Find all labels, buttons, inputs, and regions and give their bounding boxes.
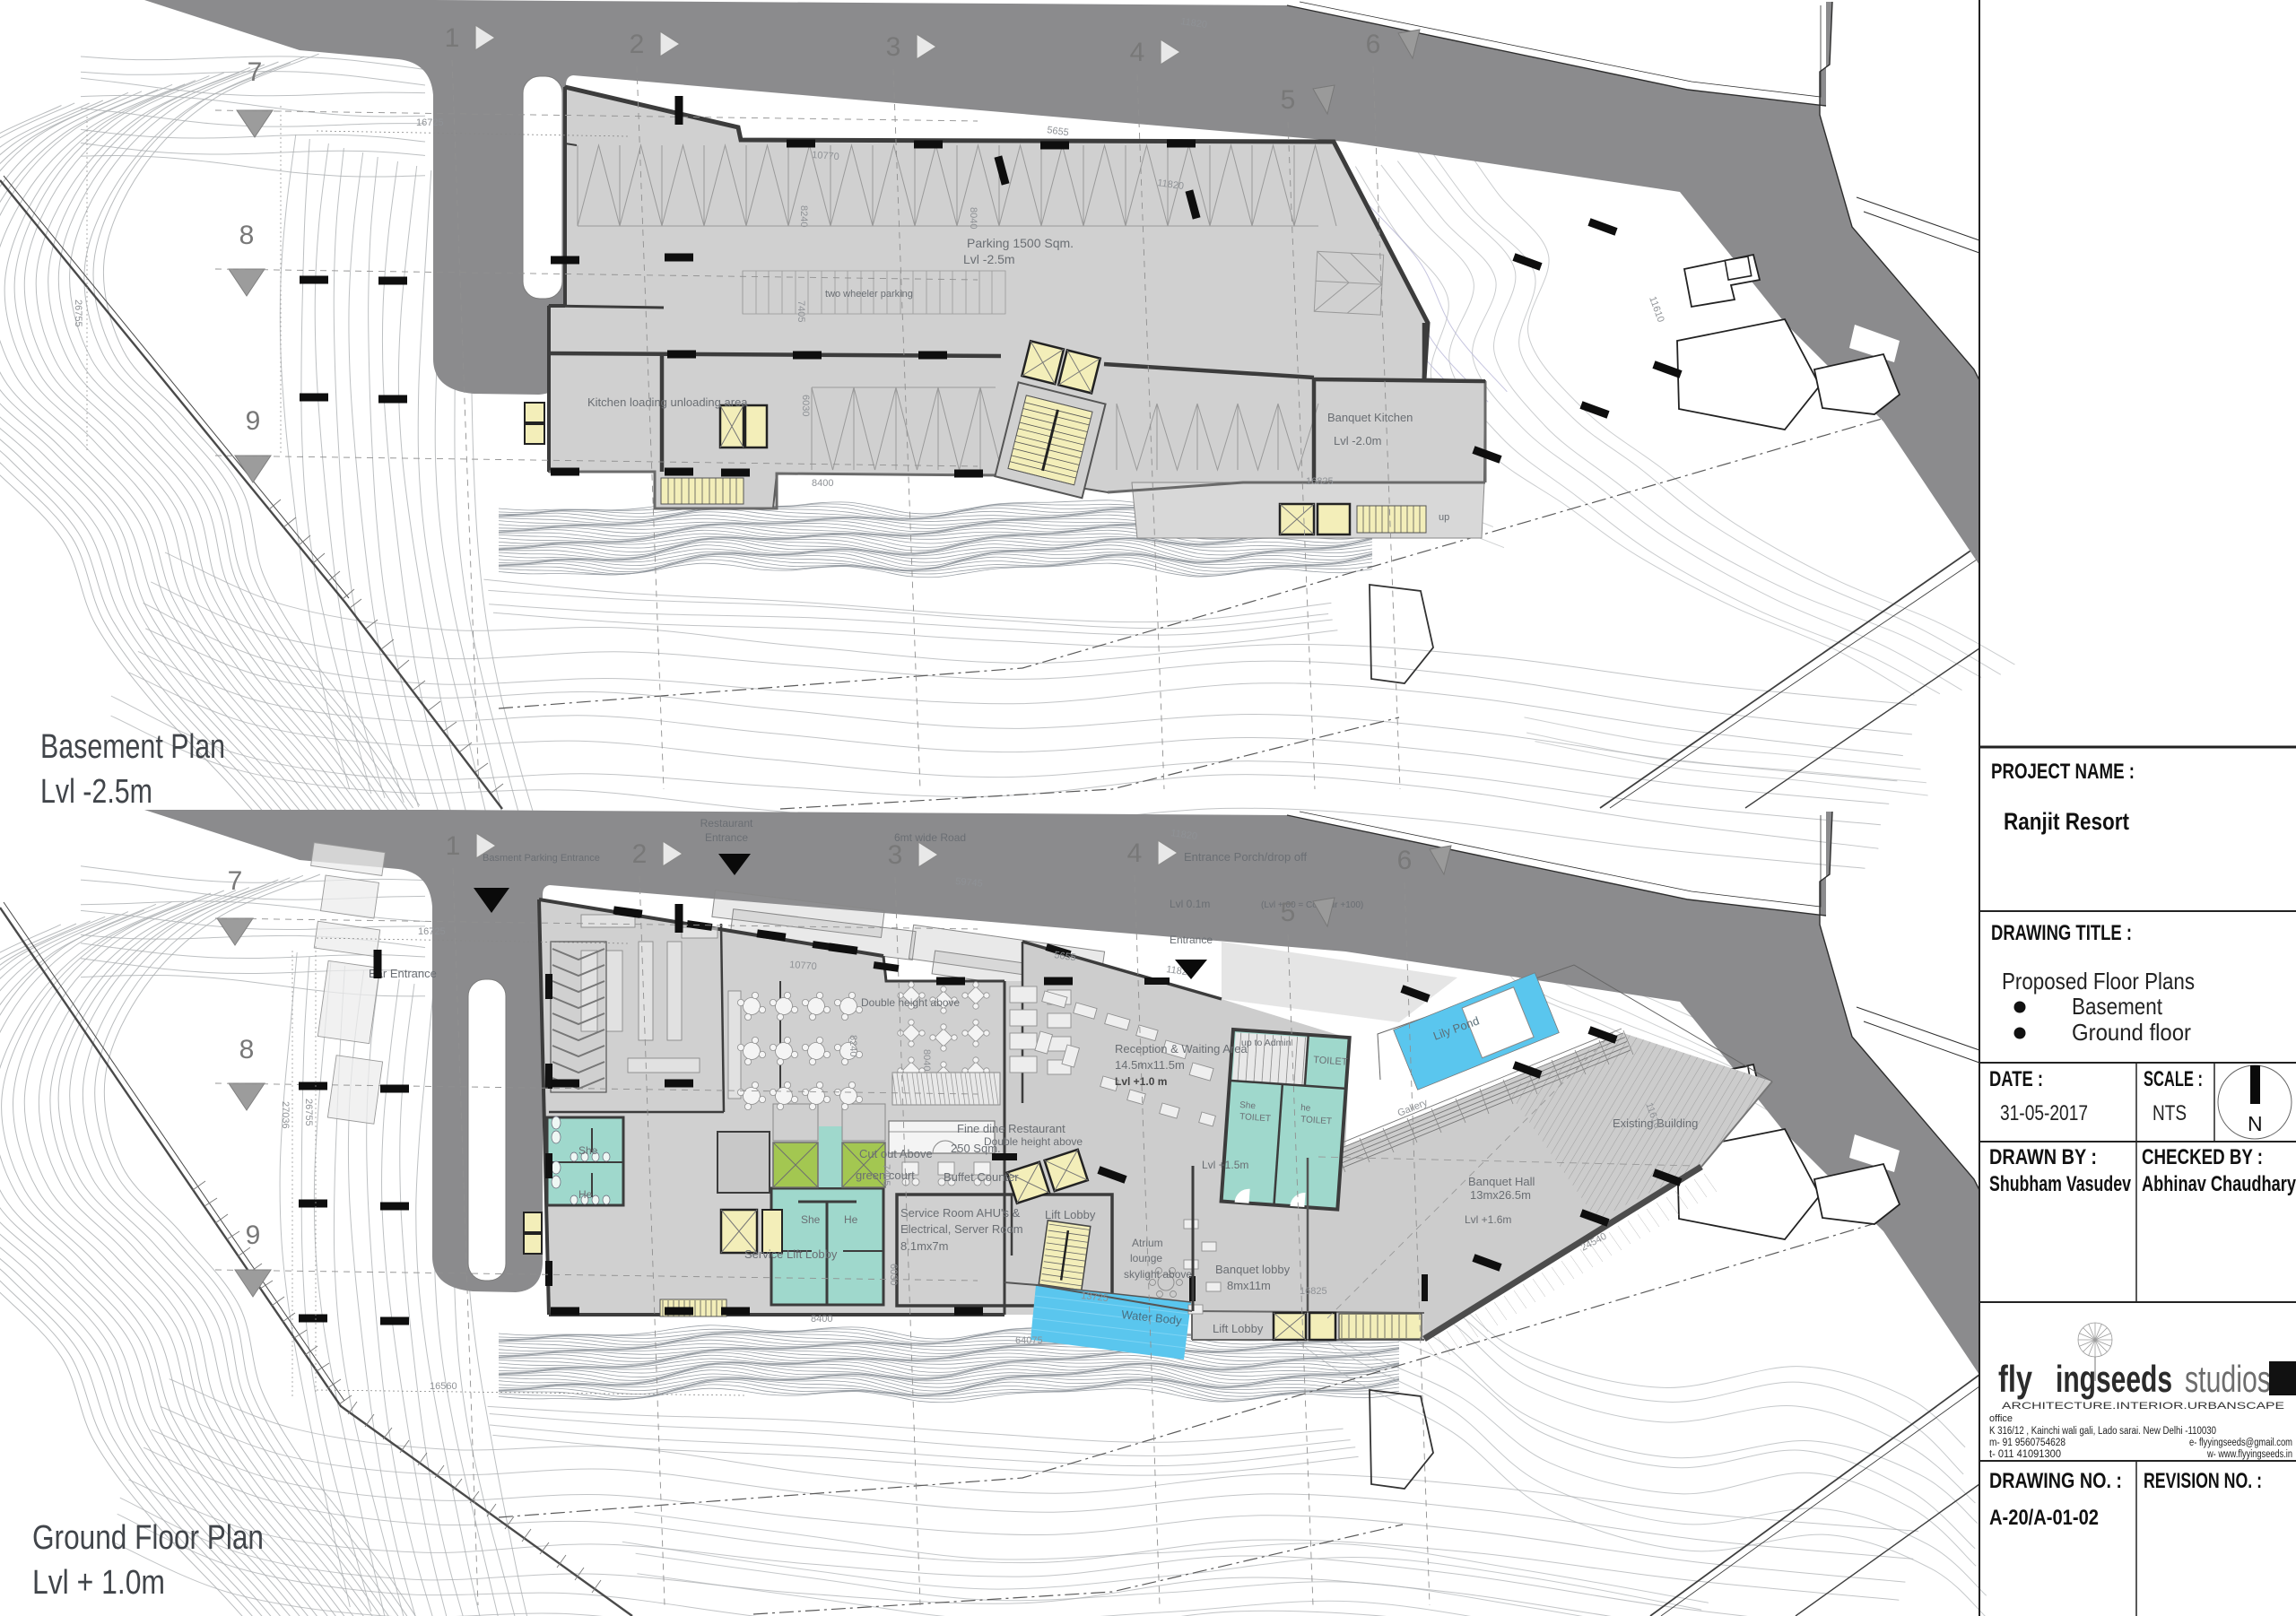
- svg-text:6mt wide Road: 6mt wide Road: [894, 831, 966, 844]
- svg-text:Banquet Hall: Banquet Hall: [1468, 1175, 1535, 1188]
- svg-text:NTS: NTS: [2152, 1101, 2187, 1125]
- svg-text:He: He: [578, 1188, 593, 1201]
- svg-text:Service Room AHU's &: Service Room AHU's &: [900, 1206, 1021, 1220]
- svg-text:DRAWN BY :: DRAWN BY :: [1989, 1145, 2097, 1169]
- svg-text:REVISION NO. :: REVISION NO. :: [2144, 1469, 2262, 1493]
- svg-text:8: 8: [239, 221, 255, 250]
- svg-text:She: She: [1239, 1100, 1257, 1111]
- svg-text:5: 5: [1281, 898, 1296, 927]
- svg-text:6: 6: [1397, 846, 1413, 875]
- svg-text:5: 5: [1281, 85, 1296, 115]
- svg-text:ingseeds: ingseeds: [2056, 1358, 2172, 1400]
- svg-text:Banquet Kitchen: Banquet Kitchen: [1327, 411, 1413, 424]
- svg-text:DATE :: DATE :: [1989, 1067, 2043, 1091]
- svg-text:8240: 8240: [848, 1035, 858, 1056]
- svg-text:Lvl +1.0 m: Lvl +1.0 m: [1115, 1075, 1167, 1088]
- svg-text:16825: 16825: [1306, 476, 1334, 487]
- svg-text:Basment Parking Entrance: Basment Parking Entrance: [483, 853, 600, 864]
- svg-text:up to Admin: up to Admin: [1241, 1038, 1291, 1048]
- svg-text:8240: 8240: [798, 205, 809, 227]
- svg-text:SCALE :: SCALE :: [2144, 1067, 2203, 1091]
- svg-text:26755: 26755: [303, 1099, 314, 1126]
- svg-text:K 316/12 , Kainchi wali gali,: K 316/12 , Kainchi wali gali, Lado sarai…: [1989, 1426, 2216, 1437]
- svg-text:31-05-2017: 31-05-2017: [2000, 1101, 2088, 1125]
- svg-text:16825: 16825: [1300, 1286, 1327, 1297]
- svg-text:8: 8: [239, 1035, 255, 1064]
- svg-text:two wheeler parking: two wheeler parking: [825, 289, 913, 300]
- svg-text:8040: 8040: [921, 1049, 932, 1071]
- svg-text:Parking 1500 Sqm.: Parking 1500 Sqm.: [967, 236, 1074, 250]
- svg-text:7: 7: [248, 57, 263, 87]
- svg-text:CHECKED BY :: CHECKED BY :: [2142, 1145, 2263, 1169]
- svg-text:fly: fly: [1998, 1358, 2032, 1400]
- svg-text:4: 4: [1130, 38, 1145, 67]
- svg-text:e- flyyingseeds@gmail.com: e- flyyingseeds@gmail.com: [2189, 1438, 2292, 1448]
- svg-text:6030: 6030: [888, 1264, 899, 1285]
- svg-text:64075: 64075: [1015, 1335, 1043, 1346]
- svg-text:w- www.flyyingseeds.in: w- www.flyyingseeds.in: [2206, 1449, 2292, 1460]
- svg-text:16560: 16560: [430, 1381, 457, 1392]
- svg-text:10770: 10770: [789, 960, 817, 972]
- svg-text:DRAWING NO. :: DRAWING NO. :: [1989, 1469, 2122, 1493]
- svg-text:Restaurant: Restaurant: [700, 817, 753, 830]
- svg-text:m- 91 9560754628: m- 91 9560754628: [1989, 1438, 2066, 1448]
- svg-text:27036: 27036: [280, 1101, 291, 1129]
- svg-text:6030: 6030: [800, 395, 811, 416]
- svg-text:1: 1: [445, 23, 460, 53]
- svg-text:skylight above: skylight above: [1124, 1268, 1192, 1281]
- svg-text:Basement: Basement: [2072, 993, 2163, 1020]
- svg-text:9: 9: [246, 406, 261, 436]
- svg-text:Entrance Porch/drop off: Entrance Porch/drop off: [1184, 850, 1307, 864]
- svg-text:Lift Lobby: Lift Lobby: [1213, 1322, 1264, 1335]
- svg-text:He: He: [844, 1213, 858, 1226]
- svg-text:studios: studios: [2185, 1358, 2271, 1400]
- svg-text:Entrance: Entrance: [1170, 934, 1213, 946]
- svg-text:7405: 7405: [796, 300, 806, 322]
- svg-text:10770: 10770: [812, 150, 839, 162]
- svg-text:Lvl -2.0m: Lvl -2.0m: [1334, 434, 1381, 447]
- svg-text:t- 011 41091300: t- 011 41091300: [1989, 1449, 2061, 1460]
- svg-text:Ground floor: Ground floor: [2072, 1019, 2191, 1046]
- svg-text:14.5mx11.5m: 14.5mx11.5m: [1115, 1058, 1185, 1072]
- svg-text:(Lvl + 00 = Contour +100): (Lvl + 00 = Contour +100): [1261, 900, 1363, 910]
- svg-text:7: 7: [228, 866, 243, 896]
- svg-text:Proposed Floor Plans: Proposed Floor Plans: [2002, 968, 2195, 995]
- svg-text:A-20/A-01-02: A-20/A-01-02: [1989, 1506, 2099, 1530]
- svg-text:7405: 7405: [881, 1164, 891, 1186]
- svg-text:Banquet lobby: Banquet lobby: [1215, 1263, 1291, 1276]
- svg-text:She: She: [801, 1213, 821, 1226]
- svg-text:he: he: [1300, 1103, 1311, 1114]
- svg-text:Abhinav Chaudhary: Abhinav Chaudhary: [2142, 1172, 2296, 1196]
- svg-text:2: 2: [632, 839, 648, 869]
- svg-text:3: 3: [888, 840, 903, 870]
- svg-text:She: She: [578, 1144, 598, 1157]
- svg-text:PROJECT NAME :: PROJECT NAME :: [1991, 760, 2135, 784]
- svg-text:16725: 16725: [418, 926, 446, 937]
- svg-text:DRAWING TITLE :: DRAWING TITLE :: [1991, 921, 2132, 945]
- svg-text:lounge: lounge: [1130, 1252, 1162, 1264]
- svg-text:Buffet Counter: Buffet Counter: [944, 1170, 1019, 1184]
- svg-text:Lvl + 1.0m: Lvl + 1.0m: [32, 1564, 165, 1602]
- svg-text:Ground Floor Plan: Ground Floor Plan: [32, 1519, 264, 1557]
- svg-text:4: 4: [1127, 838, 1143, 868]
- svg-text:N: N: [2248, 1112, 2263, 1135]
- svg-text:ARCHITECTURE.INTERIOR.URBANSCA: ARCHITECTURE.INTERIOR.URBANSCAPE: [2002, 1401, 2284, 1412]
- svg-text:Basement Plan: Basement Plan: [40, 728, 225, 766]
- svg-text:13mx26.5m: 13mx26.5m: [1470, 1188, 1531, 1202]
- svg-text:250 Sqm.: 250 Sqm.: [951, 1142, 1001, 1155]
- svg-text:Lvl -2.5m: Lvl -2.5m: [963, 252, 1015, 266]
- svg-text:8mx11m: 8mx11m: [1227, 1279, 1271, 1292]
- svg-text:Lift Lobby: Lift Lobby: [1045, 1208, 1096, 1221]
- svg-text:Electrical, Server Room: Electrical, Server Room: [900, 1222, 1023, 1236]
- svg-text:Entrance: Entrance: [705, 831, 748, 844]
- svg-text:Service Lift Lobby: Service Lift Lobby: [744, 1247, 838, 1261]
- svg-text:2: 2: [630, 30, 645, 59]
- svg-text:Lvl +1.6m: Lvl +1.6m: [1465, 1213, 1511, 1226]
- svg-text:16725: 16725: [416, 117, 444, 128]
- svg-text:26755: 26755: [73, 300, 83, 327]
- svg-text:3: 3: [886, 32, 901, 62]
- svg-text:office: office: [1989, 1413, 2013, 1424]
- svg-text:8400: 8400: [812, 478, 833, 489]
- svg-text:1: 1: [446, 831, 461, 861]
- svg-text:Lvl +1.5m: Lvl +1.5m: [1202, 1159, 1248, 1171]
- svg-text:up: up: [1439, 512, 1449, 523]
- svg-text:Lvl 0.1m: Lvl 0.1m: [1170, 898, 1210, 910]
- svg-text:9: 9: [246, 1221, 261, 1250]
- svg-text:Double height above: Double height above: [861, 996, 960, 1009]
- svg-text:Reception & Waiting Area: Reception & Waiting Area: [1115, 1042, 1248, 1056]
- svg-text:Fine dine Restaurant: Fine dine Restaurant: [957, 1122, 1065, 1135]
- svg-text:8040: 8040: [968, 207, 978, 229]
- svg-text:Shubham Vasudev: Shubham Vasudev: [1989, 1172, 2131, 1196]
- svg-text:Kitchen loading unloading area: Kitchen loading unloading area: [587, 395, 748, 409]
- svg-text:Cut out Above: Cut out Above: [859, 1147, 933, 1160]
- svg-text:Lvl -2.5m: Lvl -2.5m: [40, 773, 152, 811]
- svg-text:6: 6: [1366, 30, 1381, 59]
- svg-text:Ranjit Resort: Ranjit Resort: [2004, 808, 2129, 835]
- svg-text:8400: 8400: [811, 1314, 832, 1325]
